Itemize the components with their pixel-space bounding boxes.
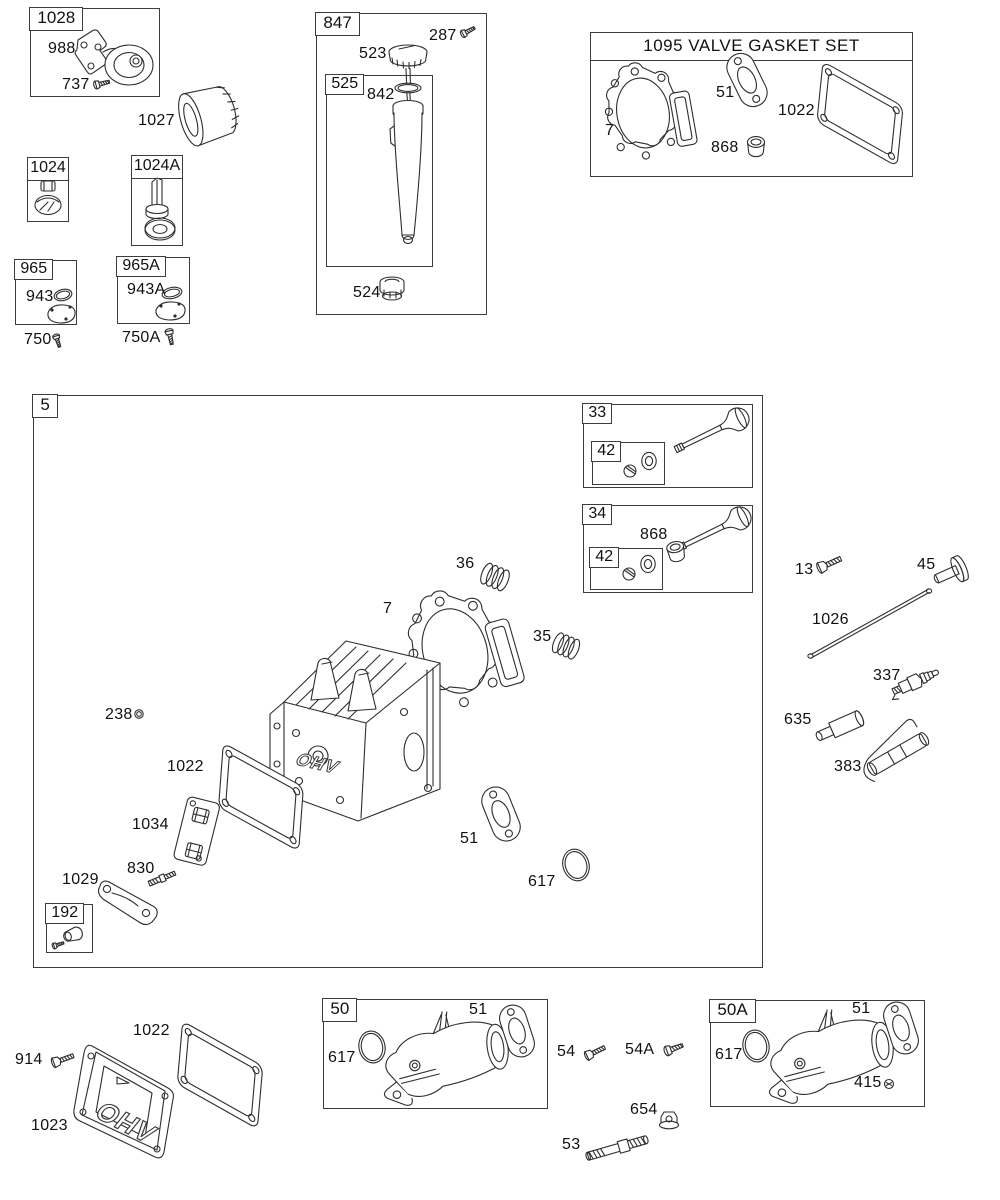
part-label-524: 524	[353, 284, 381, 302]
part-label-1022-box5: 1022	[167, 758, 204, 776]
valve-retainer-kit-drawing-exhaust	[623, 555, 655, 580]
parts-diagram-canvas: 1028 1024 1024A 965 965A 847 525 1095 VA…	[0, 0, 1000, 1200]
part-label-1023: 1023	[31, 1117, 68, 1135]
part-label-238: 238	[105, 706, 133, 724]
part-label-737: 737	[62, 76, 90, 94]
oil-filter-drawing	[174, 80, 245, 148]
part-label-1034: 1034	[132, 816, 169, 834]
part-label-943A: 943A	[127, 281, 166, 299]
bolt-54-drawing	[583, 1043, 606, 1061]
part-label-617-box50A: 617	[715, 1046, 743, 1064]
part-label-51-box5: 51	[460, 830, 478, 848]
valve-cover-drawing: OHV	[74, 1045, 174, 1158]
part-label-617-box50: 617	[328, 1049, 356, 1067]
part-label-7-box5: 7	[383, 600, 392, 618]
part-label-383: 383	[834, 758, 862, 776]
guide-plate-drawing	[173, 796, 221, 866]
part-label-54A: 54A	[625, 1041, 654, 1059]
screw-54A-drawing	[663, 1041, 685, 1057]
stud-53-drawing	[585, 1133, 650, 1162]
part-label-635: 635	[784, 711, 812, 729]
rocker-screw-13-drawing	[815, 554, 843, 574]
part-label-1027: 1027	[138, 112, 175, 130]
valve-spring-36-drawing	[478, 562, 511, 593]
part-label-337: 337	[873, 667, 901, 685]
part-label-415: 415	[854, 1074, 882, 1092]
parts-artwork: OHV	[0, 0, 1000, 1200]
exhaust-valve-drawing	[673, 503, 755, 559]
valve-retainer-kit-drawing-intake	[624, 452, 656, 477]
part-label-35: 35	[533, 628, 551, 646]
part-label-51-box50A: 51	[852, 1000, 870, 1018]
valve-cover-gasket-drawing-set	[817, 62, 903, 167]
spark-plug-wrench-drawing	[852, 716, 933, 784]
part-label-842: 842	[367, 86, 395, 104]
part-label-36: 36	[456, 555, 474, 573]
intake-valve-drawing	[671, 404, 753, 460]
plug-415-drawing	[885, 1080, 894, 1089]
part-label-51-box50: 51	[469, 1001, 487, 1019]
oring-617-drawing-box50	[356, 1029, 388, 1066]
part-label-943: 943	[26, 288, 54, 306]
part-label-654: 654	[630, 1101, 658, 1119]
part-label-53: 53	[562, 1136, 580, 1154]
part-label-51-gasketset: 51	[716, 84, 734, 102]
oring-617-drawing-box5	[559, 846, 594, 884]
valve-seal-drawing-set	[748, 137, 765, 157]
screw-750A-drawing	[165, 328, 176, 345]
part-label-1022-bottom: 1022	[133, 1022, 170, 1040]
oring-617-drawing-box50A	[740, 1028, 772, 1065]
exhaust-gasket-drawing-box5	[478, 783, 525, 845]
pivot-kit-192-drawing	[52, 926, 84, 950]
nut-654-drawing	[660, 1112, 679, 1129]
screw-750-drawing	[52, 333, 63, 348]
spark-plug-boot-drawing	[814, 710, 866, 745]
part-label-868-box34: 868	[640, 526, 668, 544]
screw-914-drawing	[50, 1051, 75, 1068]
valve-cover-gasket-drawing-bottom	[177, 1021, 263, 1129]
head-gasket-drawing-set	[598, 54, 699, 164]
part-label-287: 287	[429, 27, 457, 45]
oil-pump-kit-drawing	[35, 181, 61, 215]
part-label-7-gasketset: 7	[605, 122, 614, 140]
part-label-617-box5: 617	[528, 873, 556, 891]
oring-238-drawing	[135, 710, 143, 718]
part-label-1022-gasketset: 1022	[778, 102, 815, 120]
part-label-868-gasketset: 868	[711, 139, 739, 157]
grommet-524-drawing	[380, 277, 404, 300]
intake-manifold-drawing-box50	[384, 1012, 510, 1105]
part-label-13: 13	[795, 561, 813, 579]
part-label-45: 45	[917, 556, 935, 574]
part-label-988: 988	[48, 40, 76, 58]
valve-spring-35-drawing	[550, 631, 582, 660]
governor-gear-drawing	[145, 178, 175, 240]
part-label-1026: 1026	[812, 611, 849, 629]
part-label-523: 523	[359, 45, 387, 63]
part-label-750A: 750A	[122, 329, 161, 347]
dipstick-tube-drawing	[390, 83, 423, 243]
part-label-830: 830	[127, 860, 155, 878]
part-label-750: 750	[24, 331, 52, 349]
part-label-54: 54	[557, 1043, 575, 1061]
part-label-914: 914	[15, 1051, 43, 1069]
part-label-1029: 1029	[62, 871, 99, 889]
rocker-arm-drawing	[99, 881, 158, 924]
tappet-45-drawing	[930, 554, 971, 591]
